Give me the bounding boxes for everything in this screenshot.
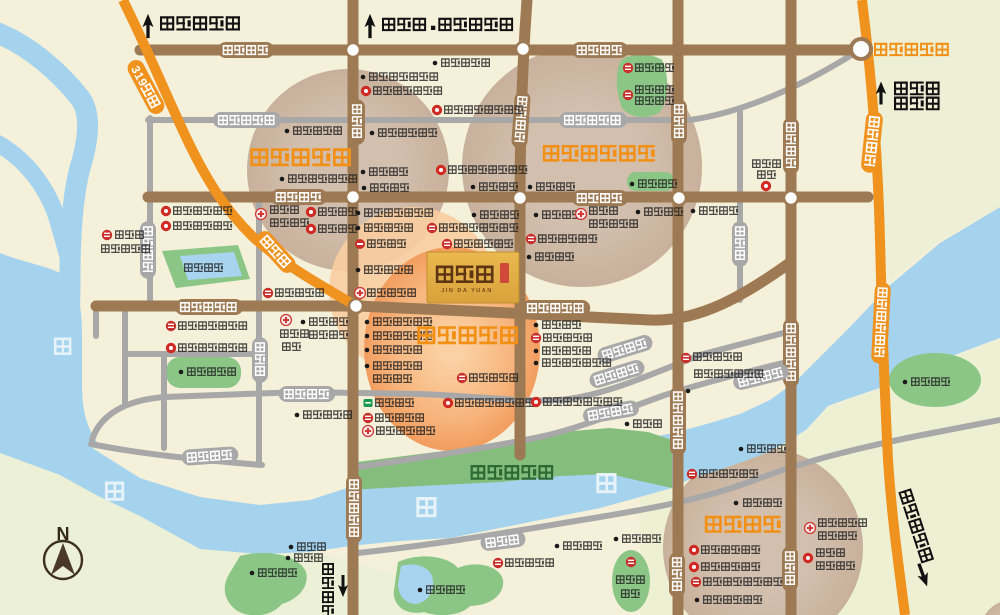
svg-text:N: N <box>57 524 70 544</box>
svg-text:JIN DA YUAN: JIN DA YUAN <box>441 288 492 294</box>
